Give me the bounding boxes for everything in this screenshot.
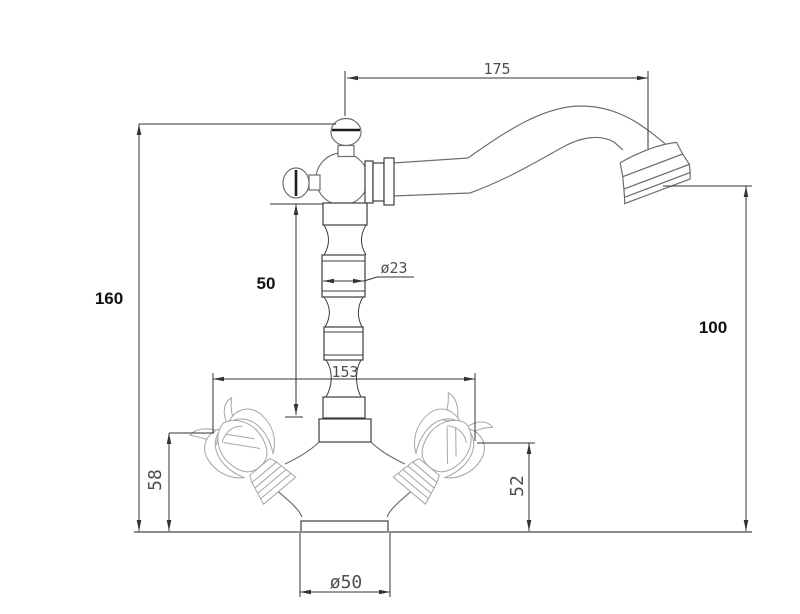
- technical-drawing-canvas: 175 160 100 50 ø23 1: [0, 0, 800, 614]
- body-sphere: [316, 153, 368, 205]
- spout-collar: [365, 158, 394, 205]
- dimension-right-handle-height: 52: [477, 443, 535, 531]
- valve-body: [283, 119, 394, 206]
- dim-label-153: 153: [331, 363, 358, 381]
- dim-label-o50: ø50: [330, 572, 363, 593]
- dimension-outlet-height: 100: [663, 186, 752, 531]
- spout-head: [610, 138, 694, 203]
- dimension-upper-body-height: 50: [257, 204, 323, 417]
- dimension-left-handle-height: 58: [145, 433, 214, 531]
- base-plate: [301, 521, 388, 532]
- dim-label-52: 52: [507, 475, 528, 497]
- lower-body: [272, 442, 417, 517]
- dim-label-50: 50: [257, 274, 276, 293]
- dim-label-100: 100: [699, 318, 727, 337]
- top-neck: [338, 146, 354, 157]
- dimension-spout-reach: 175: [345, 60, 648, 149]
- side-neck: [309, 175, 320, 190]
- top-screw-ball: [331, 119, 361, 146]
- left-handle: [187, 390, 307, 514]
- dimension-base-diameter: ø50: [300, 533, 390, 597]
- dim-label-175: 175: [483, 60, 510, 78]
- dim-label-160: 160: [95, 289, 123, 308]
- right-handle: [382, 390, 502, 514]
- dim-label-58: 58: [145, 469, 166, 491]
- column: [319, 203, 371, 442]
- faucet-dimension-drawing: 175 160 100 50 ø23 1: [0, 0, 800, 614]
- faucet-artwork: [187, 106, 695, 532]
- dim-label-o23: ø23: [380, 259, 407, 277]
